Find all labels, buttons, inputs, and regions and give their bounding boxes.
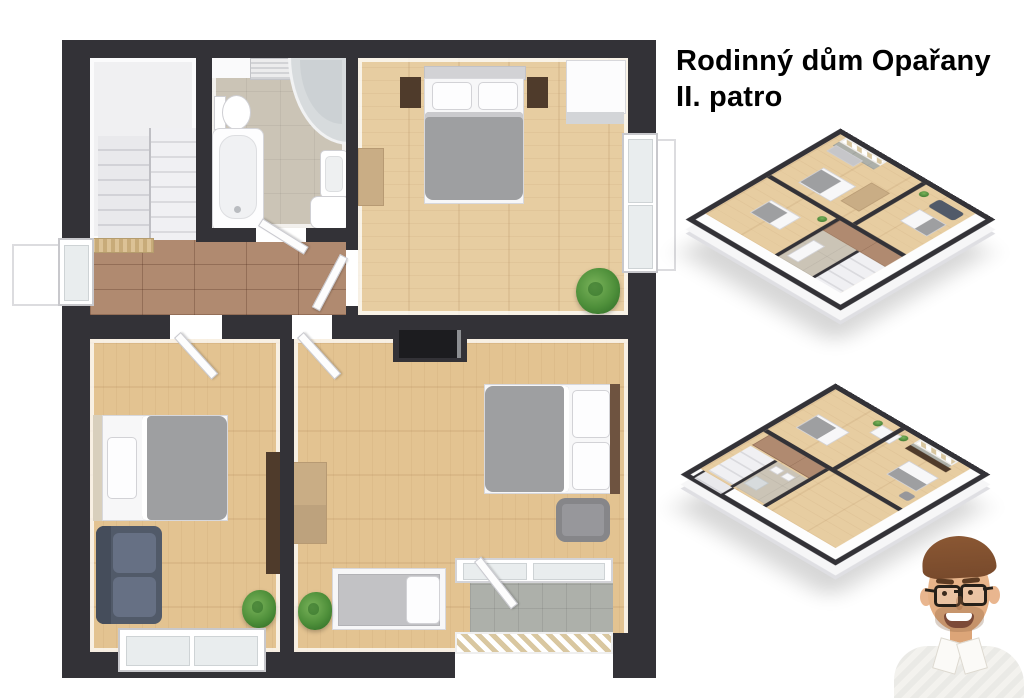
agent-eye-right — [968, 590, 973, 595]
toilet-second — [310, 196, 348, 229]
sofa-cushion-top — [113, 533, 156, 573]
wardrobe-dark — [266, 452, 280, 574]
sink-basin — [325, 156, 343, 192]
dresser-tan — [292, 462, 327, 544]
plant-bedroom-left — [242, 590, 276, 628]
doormat — [90, 238, 154, 253]
balcony-floor — [470, 583, 613, 633]
window-bedroom-top-pane-a — [628, 139, 653, 203]
stairs-divider — [149, 128, 151, 240]
agent-eye-left — [942, 591, 947, 596]
window-bedroom-left-pane-b — [194, 636, 258, 666]
window-bedroom-top-pane-b — [628, 205, 653, 269]
bed-large-pillow-top — [572, 390, 610, 438]
sofa-cushion-bottom — [113, 577, 156, 617]
bed-large-blanket — [485, 386, 569, 492]
bed-top-blanket — [425, 112, 523, 200]
window-right-sill — [656, 139, 676, 271]
bed-left-pillow — [107, 437, 137, 499]
window-bedroom-left-pane-a — [126, 636, 190, 666]
sofa-back — [96, 526, 111, 624]
balcony-railing — [455, 632, 613, 654]
bed-left-headboard — [93, 415, 102, 521]
armchair — [556, 498, 610, 542]
balcony-corner-wall — [613, 633, 656, 678]
page-subtitle: II. patro — [676, 80, 783, 115]
plant-bedroom-top — [576, 268, 620, 314]
bed-left-blanket — [142, 416, 227, 520]
balcony-door-glass-right — [533, 563, 605, 580]
bed-top-pillow-left — [432, 82, 472, 110]
window-hall-left-pane — [64, 245, 89, 301]
page-title: Rodinný dům Opařany — [676, 44, 991, 79]
tv-niche-inner — [399, 330, 461, 358]
outer-wall-top — [62, 40, 656, 58]
bed-large-headboard — [610, 384, 620, 494]
outer-wall-left — [62, 40, 90, 678]
bed-large-pillow-bottom — [572, 442, 610, 490]
wall-hall-south — [62, 315, 656, 339]
bench-tan — [358, 148, 384, 206]
agent-nose — [956, 596, 963, 610]
floorplan-2d — [0, 0, 680, 700]
toilet-bowl — [222, 95, 251, 130]
wall-stairs-bath — [196, 40, 212, 240]
plant-bedroom-large — [298, 592, 332, 630]
stairs-flight-left — [98, 136, 150, 240]
nightstand-left — [400, 77, 421, 108]
agent-teeth — [946, 613, 972, 621]
wall-bath-right — [346, 40, 358, 242]
floorplan-3d-view-1 — [686, 128, 996, 310]
agent-photo — [894, 534, 1024, 698]
wardrobe-white — [566, 60, 626, 114]
nightstand-right — [527, 77, 548, 108]
single-bed-pillow — [406, 576, 440, 624]
floorplan-sheet: Rodinný dům Opařany II. patro — [0, 0, 1024, 700]
railing-backdrop — [455, 652, 613, 678]
stairs-flight-right — [151, 128, 196, 240]
bathtub-drain — [234, 206, 241, 213]
wall-bottom-divider — [280, 339, 294, 652]
wardrobe-shadow — [566, 112, 624, 124]
agent-glasses-bridge — [954, 590, 962, 593]
window-left-sill — [12, 244, 64, 306]
agent-hair — [921, 534, 997, 580]
bed-top-pillow-right — [478, 82, 518, 110]
